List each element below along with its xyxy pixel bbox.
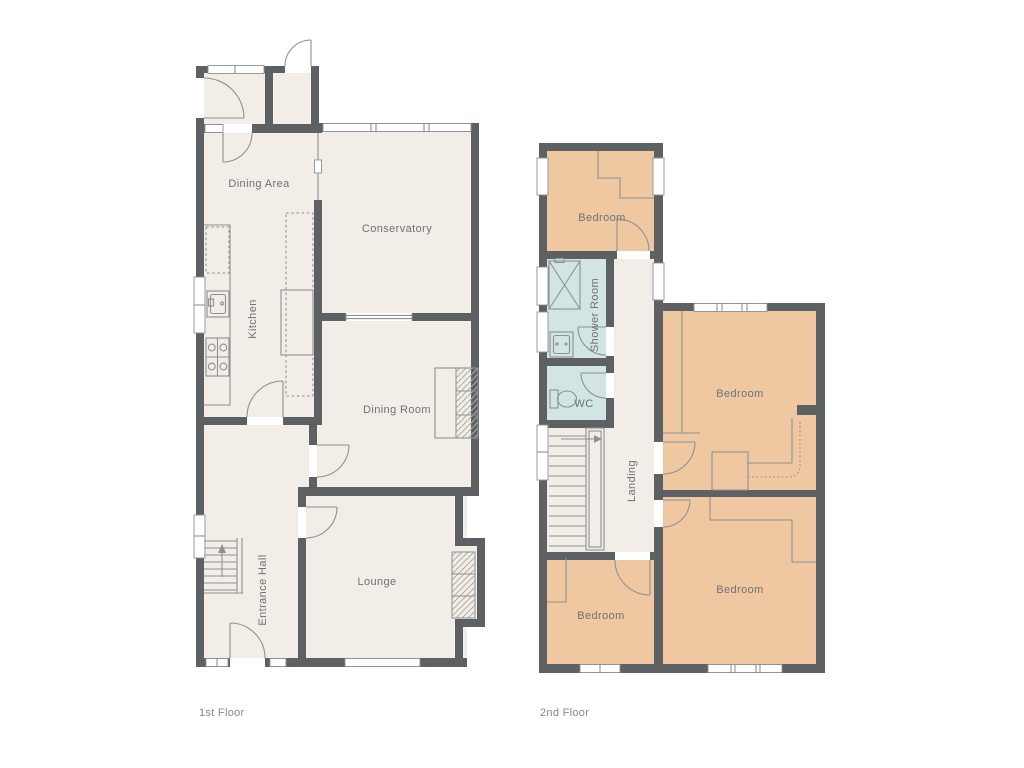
room-label-bedroom-top: Bedroom	[578, 212, 625, 224]
conservatory-dining-floor	[314, 123, 479, 496]
room-label-dining-area: Dining Area	[228, 178, 290, 190]
floor2-caption: 2nd Floor	[540, 707, 589, 719]
floorplan-canvas: Dining Area Conservatory Kitchen Dining …	[0, 0, 1024, 768]
room-label-lounge: Lounge	[357, 576, 396, 588]
room-label-bedroom-bottom-right: Bedroom	[716, 584, 763, 596]
room-wc	[547, 366, 606, 420]
room-bedroom-middle	[663, 311, 816, 490]
room-bedroom-bottom-right	[663, 497, 816, 664]
room-label-shower-room: Shower Room	[589, 278, 601, 352]
wardrobe-wall-stub	[797, 405, 817, 415]
room-label-kitchen: Kitchen	[247, 299, 259, 339]
room-label-wc: WC	[574, 398, 593, 410]
room-label-bedroom-middle: Bedroom	[716, 388, 763, 400]
room-bedroom-top	[547, 151, 654, 251]
room-label-dining-room: Dining Room	[363, 404, 431, 416]
room-label-landing: Landing	[626, 460, 638, 502]
room-label-conservatory: Conservatory	[362, 223, 432, 235]
floor1-caption: 1st Floor	[199, 707, 245, 719]
floorplan-page: Dining Area Conservatory Kitchen Dining …	[0, 0, 1024, 768]
store-room-door	[285, 40, 311, 66]
floor1-plan: Dining Area Conservatory Kitchen Dining …	[194, 40, 485, 719]
room-label-entrance-hall: Entrance Hall	[257, 554, 269, 625]
room-label-bedroom-bottom-left: Bedroom	[577, 610, 624, 622]
lounge-fireplace	[452, 552, 475, 618]
floor2-plan: Bedroom Shower Room WC Landing Bedroom B…	[537, 143, 825, 719]
porch-floor	[196, 66, 319, 133]
